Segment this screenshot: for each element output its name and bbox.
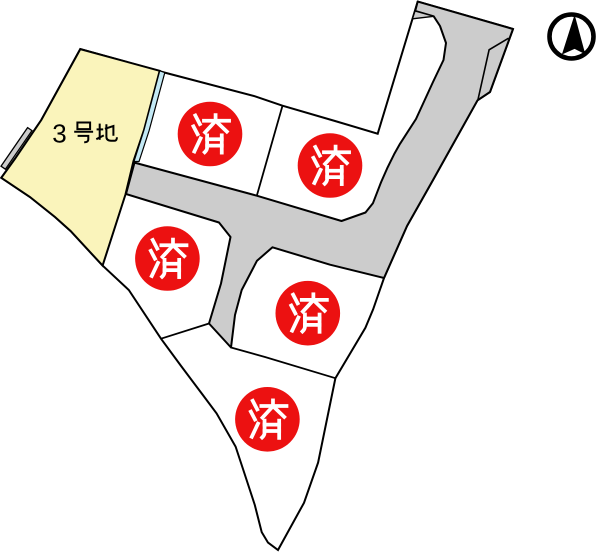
svg-text:3: 3 [52, 119, 66, 149]
